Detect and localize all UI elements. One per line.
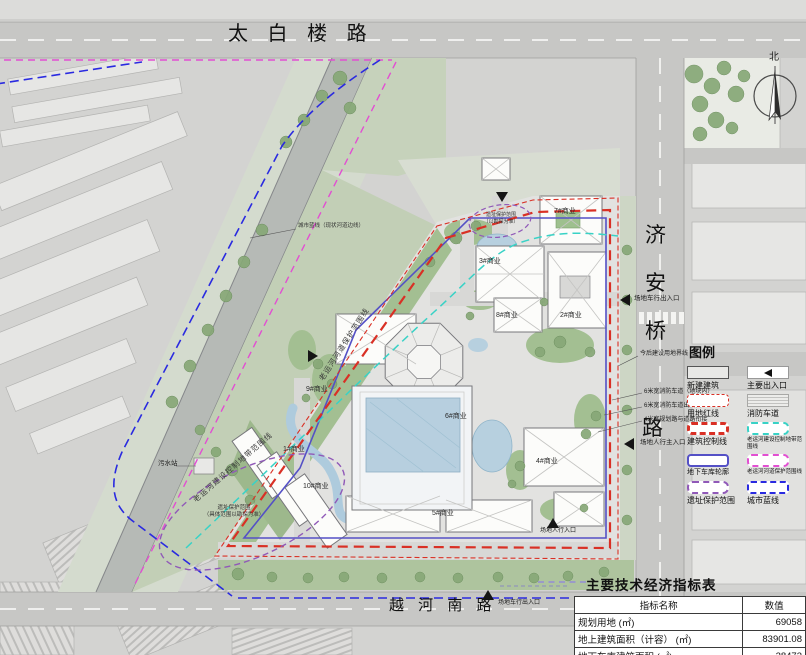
road-label-jianqiao-char: 济	[645, 225, 666, 246]
building-label-9: 9#商业	[306, 386, 328, 393]
new-building-swatch-icon	[687, 366, 729, 379]
heritage-area-swatch-icon	[687, 481, 729, 494]
site-plan-page: 太 白 楼 路 济 安 桥 路 越 河 南 路 北 7#商业 3#商业 2#商业…	[0, 0, 806, 655]
table-header-name: 指标名称	[575, 597, 743, 614]
building-label-4: 4#商业	[536, 458, 558, 465]
table-row: 地下车库建筑面积 (㎡) 28473	[575, 648, 806, 655]
legend-item-heritage-area: 遗址保护范围	[687, 481, 745, 505]
vehicle-entrance-bottom-label: 场地车行出入口	[498, 600, 540, 606]
building-label-10: 10#商业	[303, 483, 329, 490]
building-label-8: 8#商业	[496, 312, 518, 319]
pedestrian-entrance-inner-label: 场地人行入口	[540, 528, 576, 534]
indicator-table: 指标名称 数值 规划用地 (㎡) 69058 地上建筑面积（计容） (㎡) 83…	[574, 596, 806, 655]
future-plot-label: 今后建设用地界线	[640, 351, 688, 357]
road-label-jianqiao-char: 桥	[645, 321, 666, 342]
table-title-leader	[538, 581, 586, 583]
legend-item-city-blue-line: 城市蓝线	[747, 481, 806, 505]
legend-title: 图例	[689, 342, 806, 361]
vehicle-entrance-right-label: 场地车行出入口	[634, 296, 680, 303]
north-label: 北	[769, 53, 779, 63]
canal-protection-line-swatch-icon	[747, 454, 789, 467]
city-blue-line-swatch-icon	[747, 481, 789, 494]
red-line-swatch-icon	[687, 394, 729, 407]
heritage-area-note: 遗址保护范围 （具体范围以勘探为准）	[190, 505, 278, 519]
indicator-table-title: 主要技术经济指标表	[586, 574, 717, 594]
legend-item-new-building: 新建建筑	[687, 366, 745, 390]
heritage-spot-note: 遗址保护范围 （以勘探为准）	[470, 212, 532, 225]
legend-item-main-entrance: 主要出入口	[747, 366, 806, 390]
pedestrian-main-entrance-label: 场地人行主入口	[640, 440, 686, 447]
city-blue-line-label: 城市蓝线（现状河道边线）	[298, 224, 364, 230]
building-label-1: 1#商业	[283, 446, 305, 453]
table-row: 规划用地 (㎡) 69058	[575, 614, 806, 631]
legend-item-fire-lane: 消防车道	[747, 394, 806, 418]
road-label-jianqiao-char: 安	[645, 273, 666, 294]
canal-construction-line-swatch-icon	[747, 422, 789, 435]
table-header-row: 指标名称 数值	[575, 597, 806, 614]
road-label-taibailou: 太 白 楼 路	[228, 24, 374, 44]
legend-item-building-control-line: 建筑控制线	[687, 422, 745, 450]
site-plan-canvas	[0, 0, 806, 655]
table-row: 地上建筑面积（计容） (㎡) 83901.08	[575, 631, 806, 648]
table-header-value: 数值	[743, 597, 806, 614]
building-label-7: 7#商业	[554, 208, 576, 215]
garage-outline-swatch-icon	[687, 454, 729, 467]
road-label-yuehenan: 越 河 南 路	[389, 598, 497, 613]
legend: 图例 新建建筑 主要出入口 用地红线 消防车道 建筑控制线 老运河建设控制地带范…	[687, 342, 806, 505]
building-label-3: 3#商业	[479, 258, 501, 265]
building-label-5: 5#商业	[432, 510, 454, 517]
legend-item-canal-construction-line: 老运河建设控制地带范围线	[747, 422, 806, 450]
legend-item-garage-outline: 地下车库轮廓	[687, 454, 745, 477]
legend-item-canal-protection-line: 老运河河道保护范围线	[747, 454, 806, 477]
legend-item-red-line: 用地红线	[687, 394, 745, 418]
sewage-station-label: 污水站	[158, 461, 178, 468]
building-label-2: 2#商业	[560, 312, 582, 319]
fire-lane-swatch-icon	[747, 394, 789, 407]
main-entrance-swatch-icon	[747, 366, 789, 379]
building-label-6: 6#商业	[445, 413, 467, 420]
building-control-line-swatch-icon	[687, 422, 729, 435]
